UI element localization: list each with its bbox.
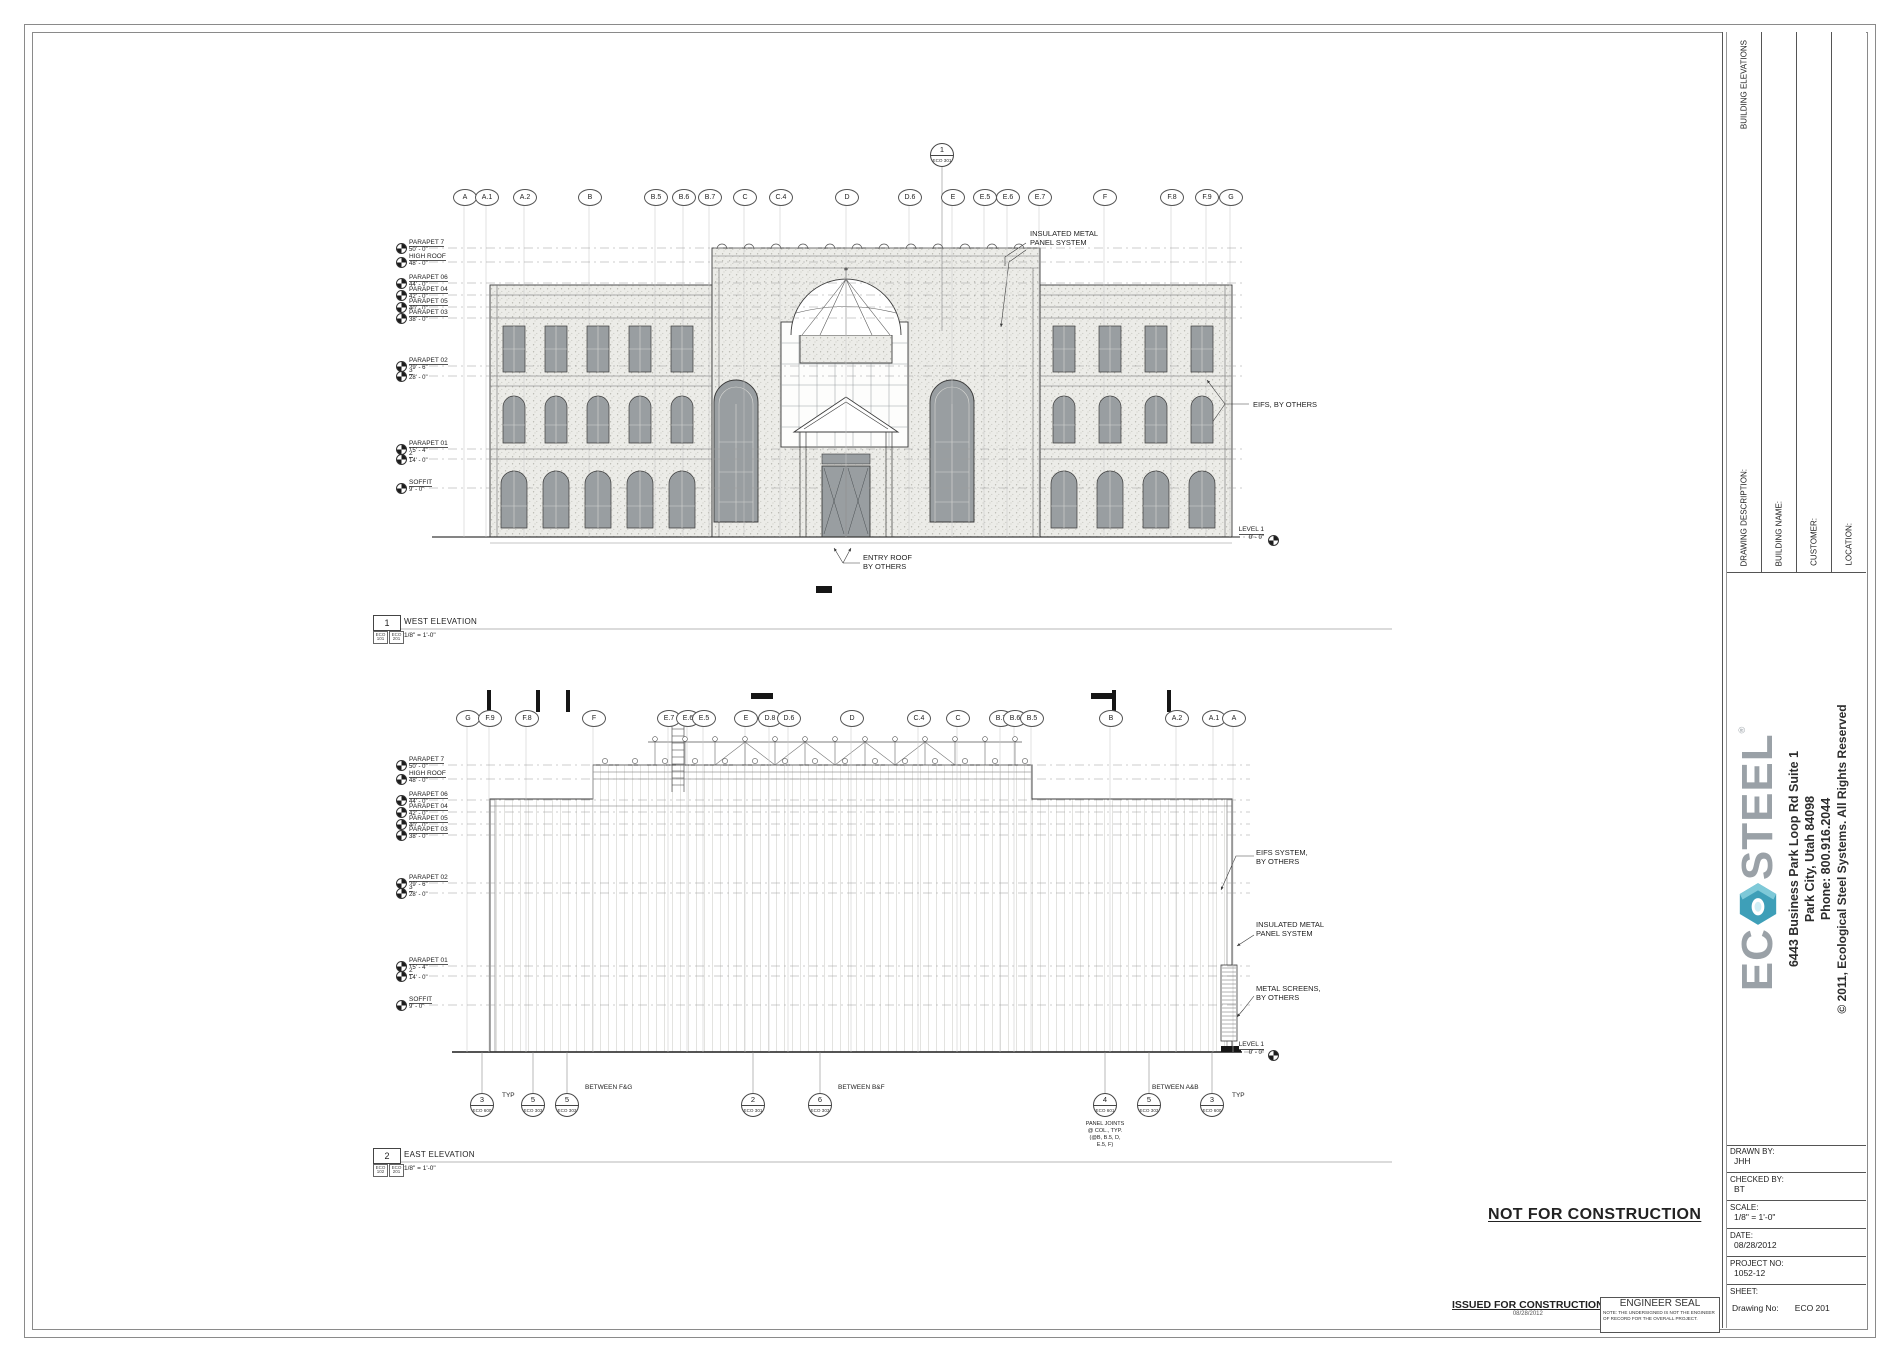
level-name: 3 <box>409 884 413 892</box>
level-name: PARAPET 06 <box>409 274 448 282</box>
grid-bubble-east-B: B <box>1099 710 1123 727</box>
east-title-refs: ECO102ECO201 <box>373 1164 404 1177</box>
callout-sheet-ref: ECO 301 <box>744 1106 763 1115</box>
titleblock-field-label: CUSTOMER: <box>1810 518 1819 566</box>
annotation-metal-screens-east: METAL SCREENS,BY OTHERS <box>1256 984 1321 1002</box>
grid-bubble-west-E.7: E.7 <box>1028 189 1052 206</box>
callout-number: 5 <box>1138 1094 1160 1106</box>
level-name: SOFFIT <box>409 479 432 487</box>
callout-sheet-ref: ECO 601 <box>1096 1106 1115 1115</box>
annotation-insulated-metal-panel-east: INSULATED METALPANEL SYSTEM <box>1256 920 1324 938</box>
titleblock-field-label: BUILDING NAME: <box>1775 501 1784 566</box>
titleblock-field-location: LOCATION: <box>1832 32 1866 572</box>
detail-callout-5: 6ECO 303 <box>808 1093 832 1117</box>
company-address: 6443 Business Park Loop Rd Suite 1Park C… <box>1786 750 1834 966</box>
grid-bubble-west-A.2: A.2 <box>513 189 537 206</box>
titleblock-row-date: DATE:08/28/2012 <box>1727 1229 1866 1257</box>
logo-steel-text: STEEL <box>1736 733 1780 880</box>
level-marker-east-3: 328' - 0" <box>396 884 428 899</box>
grid-bubble-west-B.5: B.5 <box>644 189 668 206</box>
level-name: PARAPET 7 <box>409 756 444 764</box>
east-title-number: 2 <box>373 1148 401 1164</box>
issued-date: 08/28/2012 <box>1452 1311 1604 1317</box>
field-value: JHH <box>1730 1156 1866 1166</box>
field-value: 1/8" = 1'-0" <box>1730 1212 1866 1222</box>
grid-bubble-west-A.1: A.1 <box>475 189 499 206</box>
level-elevation: 9' - 0" <box>409 1004 424 1010</box>
level-name: PARAPET 01 <box>409 957 448 965</box>
grid-bubble-east-E.5: E.5 <box>692 710 716 727</box>
callout-label: BETWEEN A&B <box>1152 1084 1199 1091</box>
west-title-refs: ECO101ECO201 <box>373 631 404 644</box>
level-target-icon <box>396 830 407 841</box>
field-label: DRAWN BY: <box>1730 1147 1866 1156</box>
grid-bubble-east-F.8: F.8 <box>515 710 539 727</box>
callout-sheet-ref: ECO 303 <box>1140 1106 1159 1115</box>
callout-sheet-ref: ECO 303 <box>558 1106 577 1115</box>
logo-rotated-block: EC STEEL ® 6443 Business Park Loop Rd Su… <box>1733 624 1861 1094</box>
titleblock-row-sheet: SHEET: Drawing No: ECO 201 <box>1727 1285 1866 1328</box>
level-marker-west-3: 328' - 0" <box>396 367 428 382</box>
issued-for-construction-st amp: ISSUED FOR CONSTRUCTION 08/28/2012 <box>1452 1299 1604 1317</box>
level-marker-west-high-roof: HIGH ROOF48' - 0" <box>396 253 446 268</box>
level-target-icon <box>396 1000 407 1011</box>
detail-callout-4: 2ECO 301 <box>741 1093 765 1117</box>
titleblock-field-value: BUILDING ELEVATIONS <box>1740 40 1749 129</box>
callout-sheet-ref: ECO 600 <box>1203 1106 1222 1115</box>
detail-callout-8: 3ECO 600 <box>1200 1093 1224 1117</box>
drawing-sheet: 1 ECO 301 INSULATED METALPANEL SYSTEM EI… <box>0 0 1900 1357</box>
callout-sheet-ref: ECO 301 <box>933 156 952 165</box>
level-target-icon <box>396 313 407 324</box>
engineer-seal-box: ENGINEER SEAL NOTE: THE UNDERSIGNED IS N… <box>1600 1297 1720 1333</box>
grid-bubble-east-A: A <box>1222 710 1246 727</box>
callout-label: TYP <box>1232 1092 1245 1099</box>
level-marker-east-soffit: SOFFIT9' - 0" <box>396 996 432 1011</box>
grid-bubble-west-B.7: B.7 <box>698 189 722 206</box>
nut-icon <box>1738 882 1778 926</box>
callout-label: TYP <box>502 1092 515 1099</box>
engineer-seal-note: NOTE: THE UNDERSIGNED IS NOT THE ENGINEE… <box>1601 1310 1719 1321</box>
annotation-insulated-metal-panel-west: INSULATED METALPANEL SYSTEM <box>1030 229 1098 247</box>
level1-name: LEVEL 1 <box>1239 526 1264 535</box>
level-elevation: 38' - 0" <box>409 834 428 840</box>
detail-callout-3: 5ECO 303 <box>555 1093 579 1117</box>
level-marker-east-parapet-03: PARAPET 0338' - 0" <box>396 826 448 841</box>
titleblock-field-building-name: BUILDING NAME: <box>1762 32 1797 572</box>
field-label: DATE: <box>1730 1231 1866 1240</box>
level-target-icon <box>396 257 407 268</box>
level-label: PARAPET 750' - 0" <box>409 239 444 254</box>
level-elevation: 48' - 0" <box>409 261 428 267</box>
level-target-icon <box>396 454 407 465</box>
section-callout-west: 1 ECO 301 <box>930 143 954 167</box>
level-name: PARAPET 05 <box>409 815 448 823</box>
level-elevation: 28' - 0" <box>409 892 428 898</box>
level-marker-east-parapet-7: PARAPET 750' - 0" <box>396 756 444 771</box>
grid-bubble-west-D.6: D.6 <box>898 189 922 206</box>
level-name: 2 <box>409 967 413 975</box>
grid-bubble-west-E.6: E.6 <box>996 189 1020 206</box>
level-target-icon <box>396 483 407 494</box>
grid-bubble-east-D.6: D.6 <box>777 710 801 727</box>
callout-number: 1 <box>931 144 953 156</box>
callout-number: 4 <box>1094 1094 1116 1106</box>
grid-bubble-west-B: B <box>578 189 602 206</box>
grid-bubble-east-F: F <box>582 710 606 727</box>
detail-callout-1: 3ECO 600 <box>470 1093 494 1117</box>
titleblock-row-checked-by: CHECKED BY:BT <box>1727 1173 1866 1201</box>
level-label: 214' - 0" <box>409 450 428 465</box>
level-name: PARAPET 06 <box>409 791 448 799</box>
sheet-ref: ECO201 <box>389 1164 404 1177</box>
west-title-number: 1 <box>373 615 401 631</box>
field-value: 08/28/2012 <box>1730 1240 1866 1250</box>
level-label: HIGH ROOF48' - 0" <box>409 770 446 785</box>
field-value: 1052-12 <box>1730 1268 1866 1278</box>
annotation-entry-roof: ENTRY ROOFBY OTHERS <box>863 553 912 571</box>
level-marker-east-high-roof: HIGH ROOF48' - 0" <box>396 770 446 785</box>
grid-bubble-east-C: C <box>946 710 970 727</box>
grid-bubble-east-B.5: B.5 <box>1020 710 1044 727</box>
grid-bubble-west-G: G <box>1219 189 1243 206</box>
annotation-eifs-west: EIFS, BY OTHERS <box>1253 400 1317 409</box>
grid-bubble-east-D: D <box>840 710 864 727</box>
level-elevation: 48' - 0" <box>409 778 428 784</box>
level-target-icon <box>396 971 407 982</box>
level-name: PARAPET 03 <box>409 826 448 834</box>
level-name: 2 <box>409 450 413 458</box>
titleblock-row-drawn-by: DRAWN BY:JHH <box>1727 1145 1866 1173</box>
field-label: CHECKED BY: <box>1730 1175 1866 1184</box>
level-label: 328' - 0" <box>409 367 428 382</box>
titleblock-field-label: LOCATION: <box>1845 523 1854 566</box>
level-target-icon <box>1268 535 1279 546</box>
level-marker-east-2: 214' - 0" <box>396 967 428 982</box>
title-number-text: 1 <box>384 618 389 628</box>
west-title-scale: 1/8" = 1'-0" <box>404 632 436 639</box>
level-target-icon <box>396 774 407 785</box>
field-value: BT <box>1730 1184 1866 1194</box>
east-title: EAST ELEVATION <box>404 1150 475 1159</box>
level-elevation: 14' - 0" <box>409 458 428 464</box>
callout-number: 6 <box>809 1094 831 1106</box>
level-label: SOFFIT9' - 0" <box>409 996 432 1011</box>
level-elevation: 28' - 0" <box>409 375 428 381</box>
copyright-line: © 2011, Ecological Steel Systems. All Ri… <box>1835 704 1849 1013</box>
titleblock-row-scale: SCALE:1/8" = 1'-0" <box>1727 1201 1866 1229</box>
callout-sheet-ref: ECO 303 <box>811 1106 830 1115</box>
callout-label: BETWEEN F&G <box>585 1084 632 1091</box>
detail-callout-2: 5ECO 303 <box>521 1093 545 1117</box>
sheet-ref: ECO101 <box>373 631 388 644</box>
level-label: PARAPET 0338' - 0" <box>409 309 448 324</box>
sheet-inner-border <box>32 32 1868 1330</box>
level-marker-west-soffit: SOFFIT9' - 0" <box>396 479 432 494</box>
grid-bubble-west-C: C <box>733 189 757 206</box>
west-title: WEST ELEVATION <box>404 617 477 626</box>
grid-bubble-west-D: D <box>835 189 859 206</box>
level-target-icon <box>396 888 407 899</box>
field-label: SCALE: <box>1730 1203 1866 1212</box>
grid-bubble-west-F: F <box>1093 189 1117 206</box>
drawing-number: ECO 201 <box>1795 1303 1830 1313</box>
grid-bubble-west-B.6: B.6 <box>672 189 696 206</box>
level-target-icon <box>396 371 407 382</box>
callout-number: 3 <box>1201 1094 1223 1106</box>
titleblock-project-info: BUILDING ELEVATIONSDRAWING DESCRIPTION:B… <box>1727 32 1866 573</box>
level-name: PARAPET 04 <box>409 286 448 294</box>
level-elevation: 38' - 0" <box>409 317 428 323</box>
level-label: HIGH ROOF48' - 0" <box>409 253 446 268</box>
callout-sheet-ref: ECO 600 <box>473 1106 492 1115</box>
sheet-ref: ECO102 <box>373 1164 388 1177</box>
level-name: PARAPET 01 <box>409 440 448 448</box>
grid-bubble-west-C.4: C.4 <box>769 189 793 206</box>
level-name: PARAPET 02 <box>409 357 448 365</box>
sheet-ref: ECO201 <box>389 631 404 644</box>
grid-bubble-east-E: E <box>734 710 758 727</box>
level-name: PARAPET 04 <box>409 803 448 811</box>
titleblock-logo-section: EC STEEL ® 6443 Business Park Loop Rd Su… <box>1727 572 1866 1146</box>
field-label: PROJECT NO: <box>1730 1259 1866 1268</box>
level-label: 214' - 0" <box>409 967 428 982</box>
grid-bubble-east-F.9: F.9 <box>478 710 502 727</box>
grid-bubble-west-F.8: F.8 <box>1160 189 1184 206</box>
titleblock-row-project-no: PROJECT NO:1052-12 <box>1727 1257 1866 1285</box>
grid-bubble-east-A.2: A.2 <box>1165 710 1189 727</box>
titleblock-field-drawing-description: BUILDING ELEVATIONSDRAWING DESCRIPTION: <box>1727 32 1762 572</box>
callout-number: 2 <box>742 1094 764 1106</box>
level-elevation: 9' - 0" <box>409 487 424 493</box>
callout-label: BETWEEN B&F <box>838 1084 885 1091</box>
not-for-construction-stamp: NOT FOR CONSTRUCTION <box>1488 1206 1701 1224</box>
callout-sheet-ref: ECO 303 <box>524 1106 543 1115</box>
level-marker-west-parapet-03: PARAPET 0338' - 0" <box>396 309 448 324</box>
grid-bubble-west-A: A <box>453 189 477 206</box>
titleblock-field-label: DRAWING DESCRIPTION: <box>1740 469 1749 566</box>
logo-registered-mark: ® <box>1737 726 1747 733</box>
level-name: HIGH ROOF <box>409 770 446 778</box>
level-marker-west-2: 214' - 0" <box>396 450 428 465</box>
level-name: PARAPET 05 <box>409 298 448 306</box>
east-title-scale: 1/8" = 1'-0" <box>404 1165 436 1172</box>
panel-joints-note: PANEL JOINTS@ COL., TYP.(@B, B.5, D,E.5,… <box>1072 1121 1138 1149</box>
sheet-label: SHEET: <box>1730 1287 1866 1296</box>
level-label: SOFFIT9' - 0" <box>409 479 432 494</box>
titleblock: BUILDING ELEVATIONSDRAWING DESCRIPTION:B… <box>1722 32 1866 1328</box>
level1-label-east: LEVEL 1 0' - 0" <box>1216 1039 1264 1057</box>
level-label: PARAPET 750' - 0" <box>409 756 444 771</box>
level-target-icon <box>1268 1050 1279 1061</box>
grid-bubble-east-C.4: C.4 <box>907 710 931 727</box>
engineer-seal-title: ENGINEER SEAL <box>1601 1298 1719 1310</box>
grid-bubble-west-F.9: F.9 <box>1195 189 1219 206</box>
detail-callout-7: 5ECO 303 <box>1137 1093 1161 1117</box>
level1-label-west: LEVEL 1 0' - 0" <box>1216 524 1264 542</box>
level-name: 3 <box>409 367 413 375</box>
level-label: 328' - 0" <box>409 884 428 899</box>
titleblock-fields: DRAWN BY:JHHCHECKED BY:BTSCALE:1/8" = 1'… <box>1727 1145 1866 1328</box>
level-label: PARAPET 0338' - 0" <box>409 826 448 841</box>
level1-name: LEVEL 1 <box>1239 1041 1264 1050</box>
grid-bubble-east-G: G <box>456 710 480 727</box>
level-name: SOFFIT <box>409 996 432 1004</box>
level-name: PARAPET 7 <box>409 239 444 247</box>
detail-callout-6: 4ECO 601 <box>1093 1093 1117 1117</box>
level-elevation: 14' - 0" <box>409 975 428 981</box>
title-number-text: 2 <box>384 1151 389 1161</box>
drawing-number-row: Drawing No: ECO 201 <box>1730 1303 1866 1313</box>
titleblock-field-customer: CUSTOMER: <box>1797 32 1832 572</box>
annotation-eifs-system-east: EIFS SYSTEM,BY OTHERS <box>1256 848 1308 866</box>
level-name: PARAPET 02 <box>409 874 448 882</box>
level-marker-west-parapet-7: PARAPET 750' - 0" <box>396 239 444 254</box>
level1-elev: 0' - 0" <box>1216 535 1264 542</box>
drawing-no-label: Drawing No: <box>1732 1303 1779 1313</box>
level1-elev: 0' - 0" <box>1216 1050 1264 1057</box>
callout-number: 3 <box>471 1094 493 1106</box>
callout-number: 5 <box>522 1094 544 1106</box>
ecosteel-logo: EC STEEL ® <box>1733 726 1783 991</box>
logo-ec-text: EC <box>1736 928 1780 991</box>
grid-bubble-west-E.5: E.5 <box>973 189 997 206</box>
level-name: HIGH ROOF <box>409 253 446 261</box>
issued-for-construction-text: ISSUED FOR CONSTRUCTION <box>1452 1299 1604 1311</box>
level-name: PARAPET 03 <box>409 309 448 317</box>
callout-number: 5 <box>556 1094 578 1106</box>
grid-bubble-west-E: E <box>941 189 965 206</box>
